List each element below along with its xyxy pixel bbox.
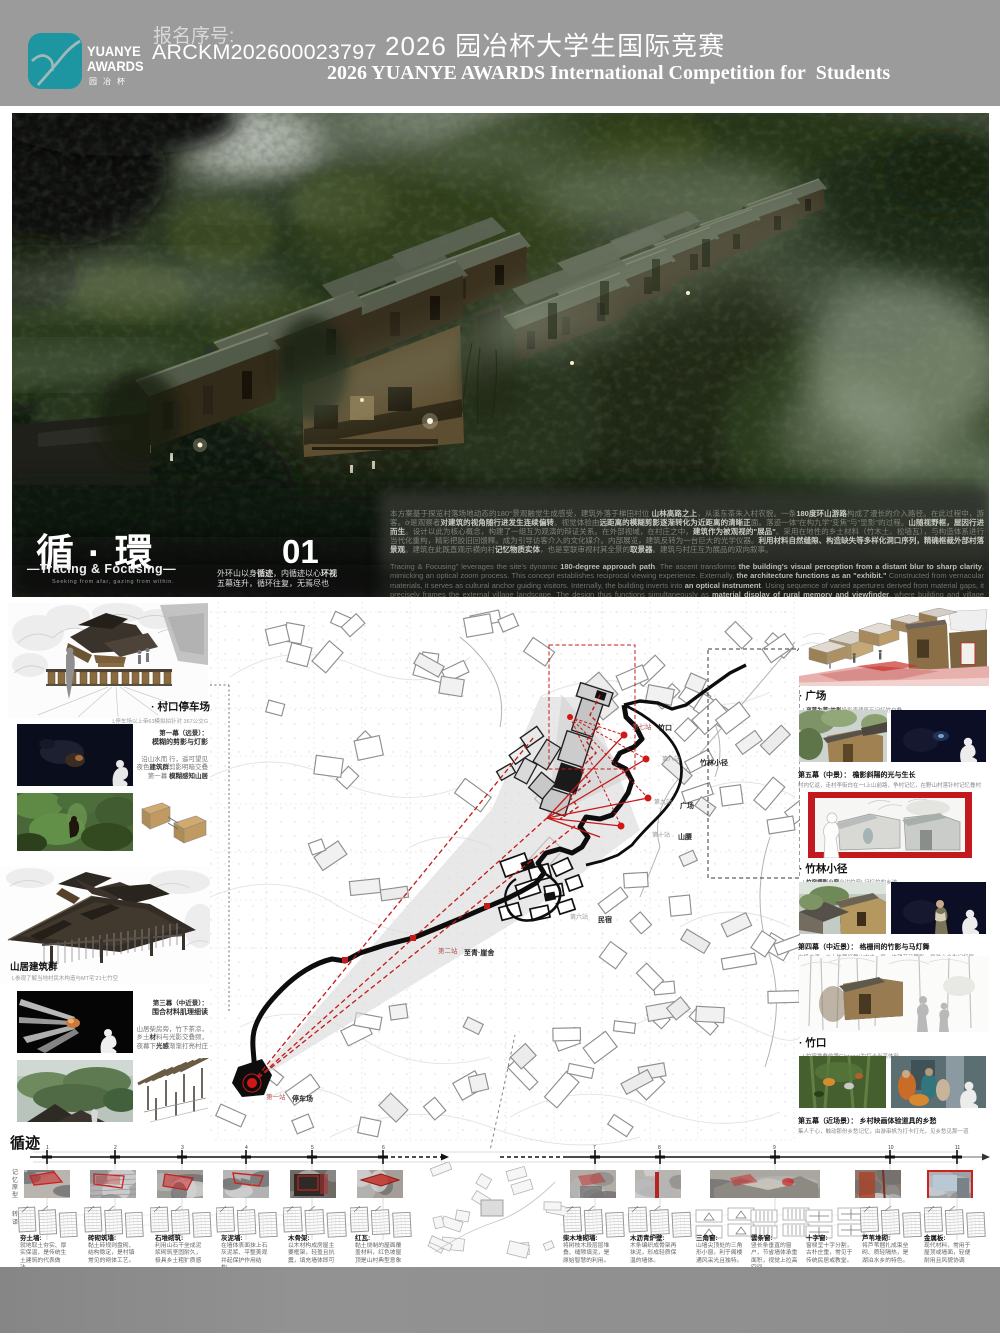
svg-text:10: 10 bbox=[888, 1145, 894, 1151]
svg-text:5: 5 bbox=[311, 1145, 314, 1151]
svg-text:8: 8 bbox=[658, 1145, 661, 1151]
svg-text:4: 4 bbox=[245, 1145, 248, 1151]
svg-text:7: 7 bbox=[593, 1145, 596, 1151]
svg-text:11: 11 bbox=[955, 1145, 960, 1151]
svg-text:1: 1 bbox=[46, 1145, 49, 1151]
svg-text:3: 3 bbox=[181, 1145, 184, 1151]
svg-text:第八站: 第八站 bbox=[662, 755, 680, 763]
svg-text:山腰: 山腰 bbox=[678, 832, 692, 841]
svg-text:停车场: 停车场 bbox=[292, 1094, 313, 1103]
svg-text:第七站: 第七站 bbox=[632, 722, 652, 731]
svg-text:第十站: 第十站 bbox=[652, 831, 670, 839]
svg-text:至青·崖舍: 至青·崖舍 bbox=[464, 948, 495, 957]
svg-text:第二站: 第二站 bbox=[438, 946, 458, 955]
svg-text:9: 9 bbox=[773, 1145, 776, 1151]
svg-text:2: 2 bbox=[114, 1145, 117, 1151]
svg-text:竹林小径: 竹林小径 bbox=[699, 758, 728, 767]
svg-text:第一站: 第一站 bbox=[266, 1092, 286, 1101]
svg-text:第六站: 第六站 bbox=[570, 913, 588, 921]
svg-text:广场: 广场 bbox=[680, 801, 694, 810]
svg-text:L参观了解当地村民木构造与MT宅'21七竹空: L参观了解当地村民木构造与MT宅'21七竹空 bbox=[12, 974, 119, 982]
svg-text:民宿: 民宿 bbox=[598, 915, 612, 924]
svg-text:山居建筑群: 山居建筑群 bbox=[10, 961, 58, 973]
svg-text:竹口: 竹口 bbox=[657, 723, 672, 732]
svg-text:第九站: 第九站 bbox=[654, 798, 672, 806]
svg-text:6: 6 bbox=[382, 1145, 385, 1151]
